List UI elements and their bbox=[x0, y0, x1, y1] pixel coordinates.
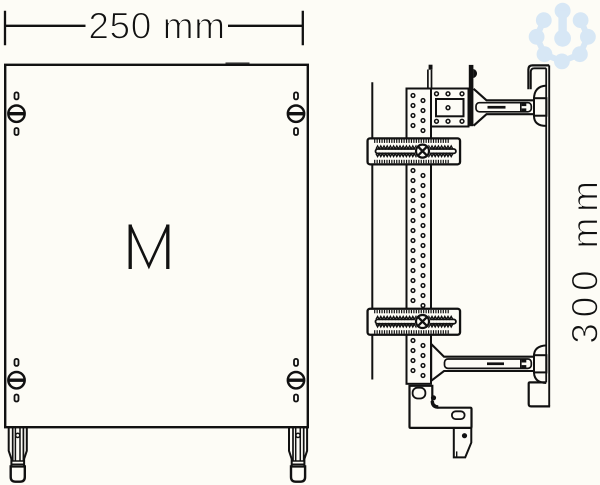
svg-text:300 mm: 300 mm bbox=[564, 175, 600, 343]
svg-text:250 mm: 250 mm bbox=[88, 6, 225, 47]
